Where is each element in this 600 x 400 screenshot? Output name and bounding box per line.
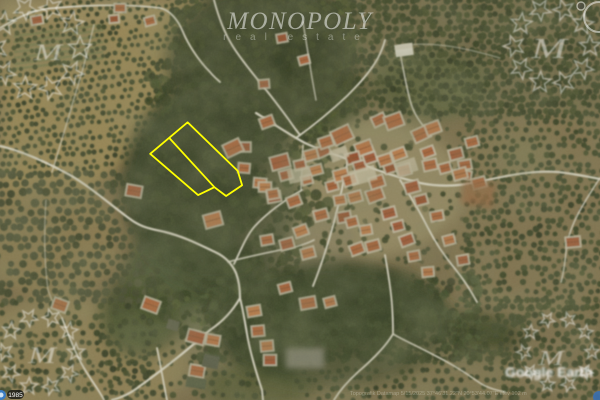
svg-text:M: M [530,32,568,64]
svg-text:M: M [27,343,58,369]
svg-text:M: M [33,40,64,66]
svg-text:Topografik Datamap 5/15/2025: Topografik Datamap 5/15/2025 37°46'31.22… [350,391,527,397]
svg-text:real estate: real estate [223,32,369,43]
svg-text:Google Earth: Google Earth [505,364,593,380]
svg-text:MONOPOLY: MONOPOLY [226,8,374,35]
